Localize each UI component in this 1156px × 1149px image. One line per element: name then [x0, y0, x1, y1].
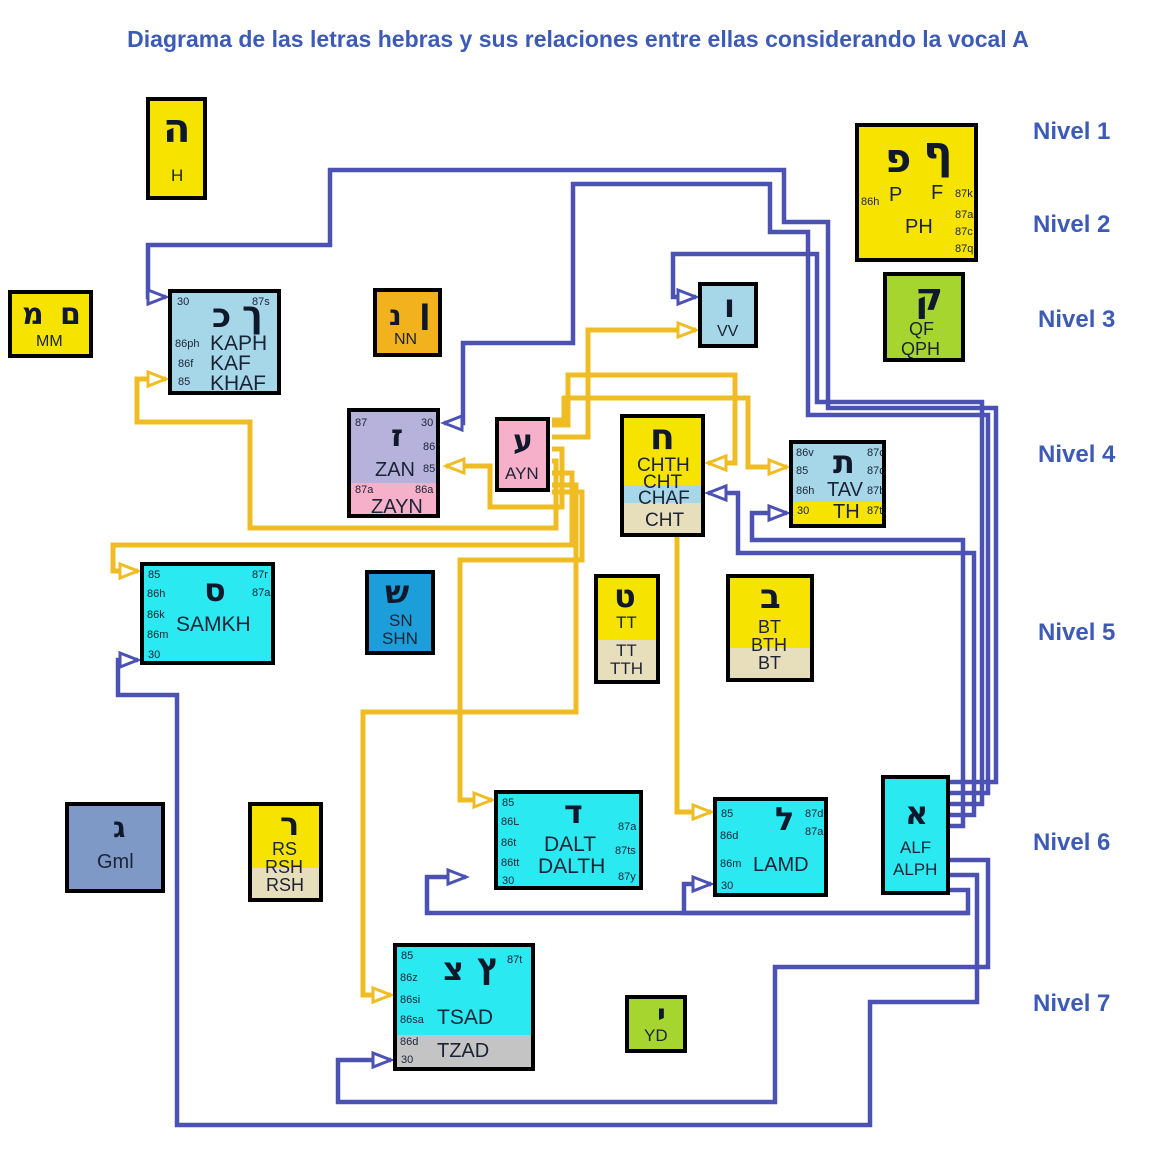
level-label-7: Nivel 7: [1033, 990, 1110, 1018]
level-label-5: Nivel 5: [1038, 619, 1115, 647]
level-label-3: Nivel 3: [1038, 306, 1115, 334]
connector-chth-to-lamd-85: [677, 537, 711, 812]
connector-ayn-to-chth: [552, 375, 735, 463]
level-label-2: Nivel 2: [1033, 211, 1110, 239]
connector-alf-to-lamd-30: [684, 884, 968, 913]
connector-alf-to-tav-30: [752, 513, 963, 826]
connector-ayn-to-zan-85: [446, 449, 562, 507]
connector-layer: [0, 0, 1156, 1149]
connector-alf-to-tsad-30: [338, 860, 988, 1102]
connector-alf-to-zan-30: [444, 184, 988, 793]
diagram-canvas: Diagrama de las letras hebras y sus rela…: [0, 0, 1156, 1149]
connector-ayn-to-samkh-85: [113, 473, 572, 571]
connector-ayn-to-dalt-85: [460, 492, 582, 800]
connector-alf-to-samkh-30: [118, 660, 977, 1125]
connector-ayn-to-vv: [552, 330, 696, 437]
level-label-6: Nivel 6: [1033, 829, 1110, 857]
level-label-4: Nivel 4: [1038, 441, 1115, 469]
page-title: Diagrama de las letras hebras y sus rela…: [0, 26, 1156, 53]
level-label-1: Nivel 1: [1033, 118, 1110, 146]
